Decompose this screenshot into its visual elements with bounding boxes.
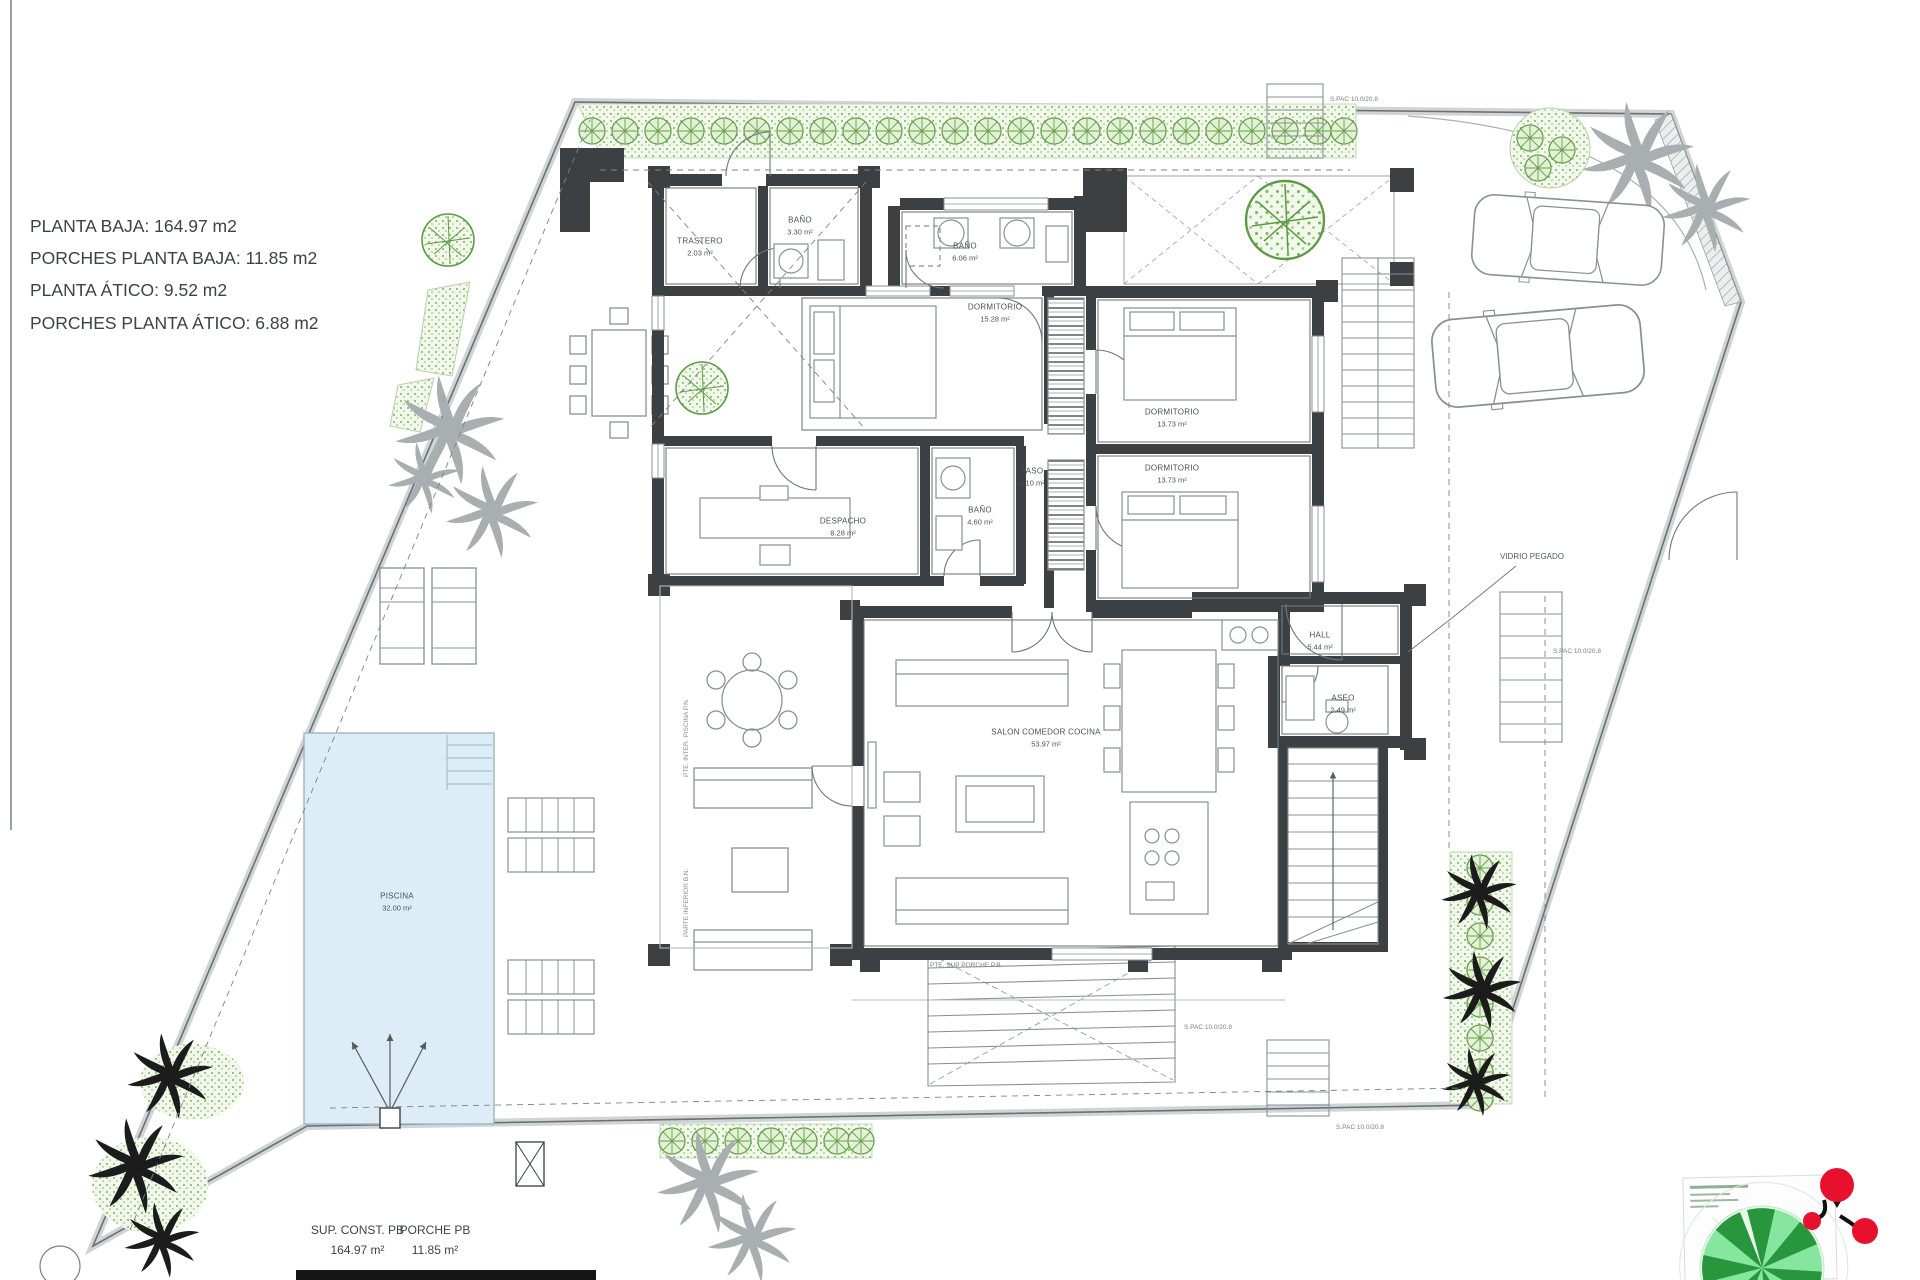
room-label-paso: PASO 4.10 m² (1019, 465, 1044, 488)
stair-note: S.PAC 10.0/20.8 (1553, 648, 1601, 655)
room-label-bano-3: BAÑO 4.60 m² (967, 504, 992, 527)
footer-porche: PORCHE PB 11.85 m² (385, 1220, 485, 1261)
stair-note: S.PAC 10.0/20.8 (1330, 96, 1378, 103)
legend-line: PLANTA ÁTICO: 9.52 m2 (30, 274, 319, 306)
room-label-salon: SALON COMEDOR COCINA 53.97 m² (991, 726, 1100, 749)
tree (676, 362, 728, 414)
room-label-dormitorio-1: DORMITORIO 15.28 m² (968, 301, 1022, 324)
porch-note: PTE. SUP PORCHE P.B. (930, 962, 1002, 969)
room-label-dormitorio-3: DORMITORIO 13.73 m² (1145, 462, 1199, 485)
room-label-bano-1: BAÑO 3.30 m² (787, 214, 812, 237)
footer-label: PORCHE PB (385, 1220, 485, 1240)
room-label-bano-2: BAÑO 6.06 m² (952, 240, 977, 263)
pool (304, 733, 494, 1124)
vidrio-pegado-note: VIDRIO PEGADO (1500, 552, 1564, 561)
drain-box (516, 1142, 544, 1186)
area-legend: PLANTA BAJA: 164.97 m2 PORCHES PLANTA BA… (30, 210, 319, 339)
floor-plan-page: PLANTA BAJA: 164.97 m2 PORCHES PLANTA BA… (0, 0, 1920, 1280)
vertical-note-2: PARTE INFERIOR B.N. (683, 869, 690, 937)
room-label-dormitorio-2: DORMITORIO 13.73 m² (1145, 406, 1199, 429)
room-label-despacho: DESPACHO 8.28 m² (820, 515, 866, 538)
legend-line: PLANTA BAJA: 164.97 m2 (30, 210, 319, 242)
tree (422, 214, 474, 266)
stair-note: S.PAC 10.0/20.8 (1184, 1024, 1232, 1031)
room-label-aseo: ASEO 2.49 m² (1330, 692, 1355, 715)
footer-value: 11.85 m² (385, 1240, 485, 1260)
vertical-note-1: PTE. INTER. PISCINA P.N. (683, 698, 690, 777)
legend-line: PORCHES PLANTA ÁTICO: 6.88 m2 (30, 307, 319, 339)
room-label-trastero: TRASTERO 2.03 m² (677, 235, 723, 258)
title-block (1678, 1168, 1878, 1280)
room-label-piscina: PISCINA 32.00 m² (380, 890, 414, 913)
floor-plan-drawing (0, 0, 1920, 1280)
room-label-hall: HALL 5.44 m² (1307, 629, 1332, 652)
tree (1246, 181, 1324, 259)
stair-note: S.PAC 10.0/20.8 (1336, 1124, 1384, 1131)
car-1 (1470, 188, 1666, 291)
legend-line: PORCHES PLANTA BAJA: 11.85 m2 (30, 242, 319, 274)
